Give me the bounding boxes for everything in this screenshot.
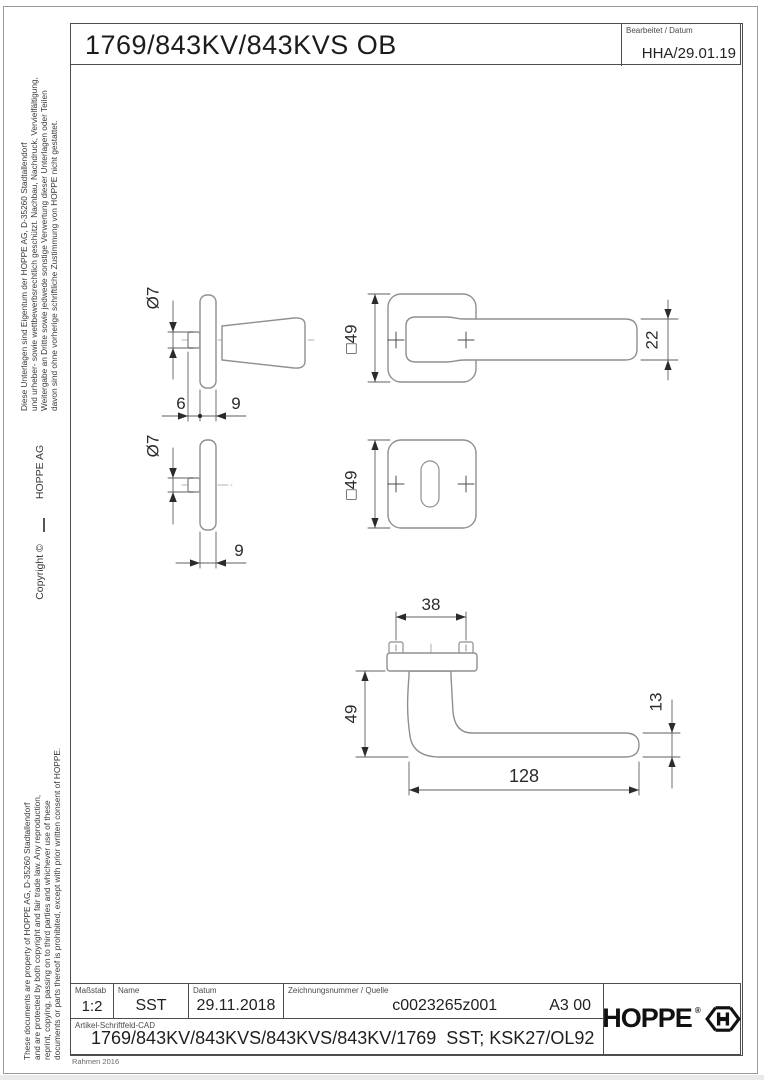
dim-rose-size-rose-front: □49: [341, 470, 360, 499]
logo-cell: HOPPE ®: [604, 984, 740, 1054]
view-handle-top: 38 49 13 128: [341, 595, 680, 795]
registered-mark: ®: [695, 1006, 701, 1015]
scale-cell: Maßstab 1:2: [71, 984, 114, 1018]
format-value: A3 00: [549, 997, 591, 1015]
dim-length-handle-top: 128: [509, 766, 539, 786]
date-value: 29.11.2018: [189, 997, 283, 1015]
dim-offset-handle-side: 6: [176, 394, 185, 413]
title-block-bottom: Maßstab 1:2 Name SST Datum 29.11.2018 Ze…: [70, 983, 741, 1055]
dim-diameter-handle-side: Ø7: [143, 287, 162, 310]
date-cell: Datum 29.11.2018: [189, 984, 284, 1018]
frame-version-note: Rahmen 2016: [72, 1057, 119, 1066]
drawing-number-cell: Zeichnungsnummer / Quelle c0023265z001 A…: [284, 984, 604, 1018]
drawing-number-value: c0023265z001: [392, 997, 497, 1015]
dim-grip-thickness-handle-top: 13: [646, 693, 665, 712]
hoppe-logo-text: HOPPE: [602, 1005, 692, 1032]
cad-drawing-sheet: { "title_block_top": { "title": "1769/84…: [0, 0, 764, 1080]
view-rose-front: □49: [341, 440, 476, 528]
dim-rose-size-handle-front: □49: [341, 324, 360, 353]
date-label: Datum: [193, 986, 217, 995]
dim-diameter-rose-side: Ø7: [143, 435, 162, 458]
dim-height-handle-top: 49: [341, 705, 360, 724]
article-value: 1769/843KV/843KVS/843KVS/843KV/1769 SST;…: [91, 1028, 594, 1049]
dim-rose-thickness-handle-side: 9: [231, 394, 240, 413]
drawing-number-label: Zeichnungsnummer / Quelle: [288, 986, 389, 995]
dim-screw-spacing-handle-top: 38: [422, 595, 441, 614]
technical-drawing: Ø7 6 9 □49: [0, 0, 764, 1080]
name-label: Name: [118, 986, 139, 995]
view-rose-side: Ø7 9: [143, 435, 246, 568]
dim-thickness-rose-side: 9: [234, 541, 243, 560]
scale-label: Maßstab: [75, 986, 106, 995]
scale-value: 1:2: [71, 998, 113, 1015]
name-cell: Name SST: [114, 984, 189, 1018]
view-handle-side: Ø7 6 9: [143, 287, 314, 421]
article-cell: Artikel-Schriftfeld-CAD 1769/843KV/843KV…: [71, 1018, 604, 1054]
hoppe-handle-icon: [704, 1005, 742, 1033]
hoppe-logo: HOPPE ®: [602, 1005, 741, 1033]
view-handle-front: □49 22: [341, 294, 678, 382]
dim-lever-width-handle-front: 22: [642, 331, 661, 350]
name-value: SST: [114, 997, 188, 1015]
